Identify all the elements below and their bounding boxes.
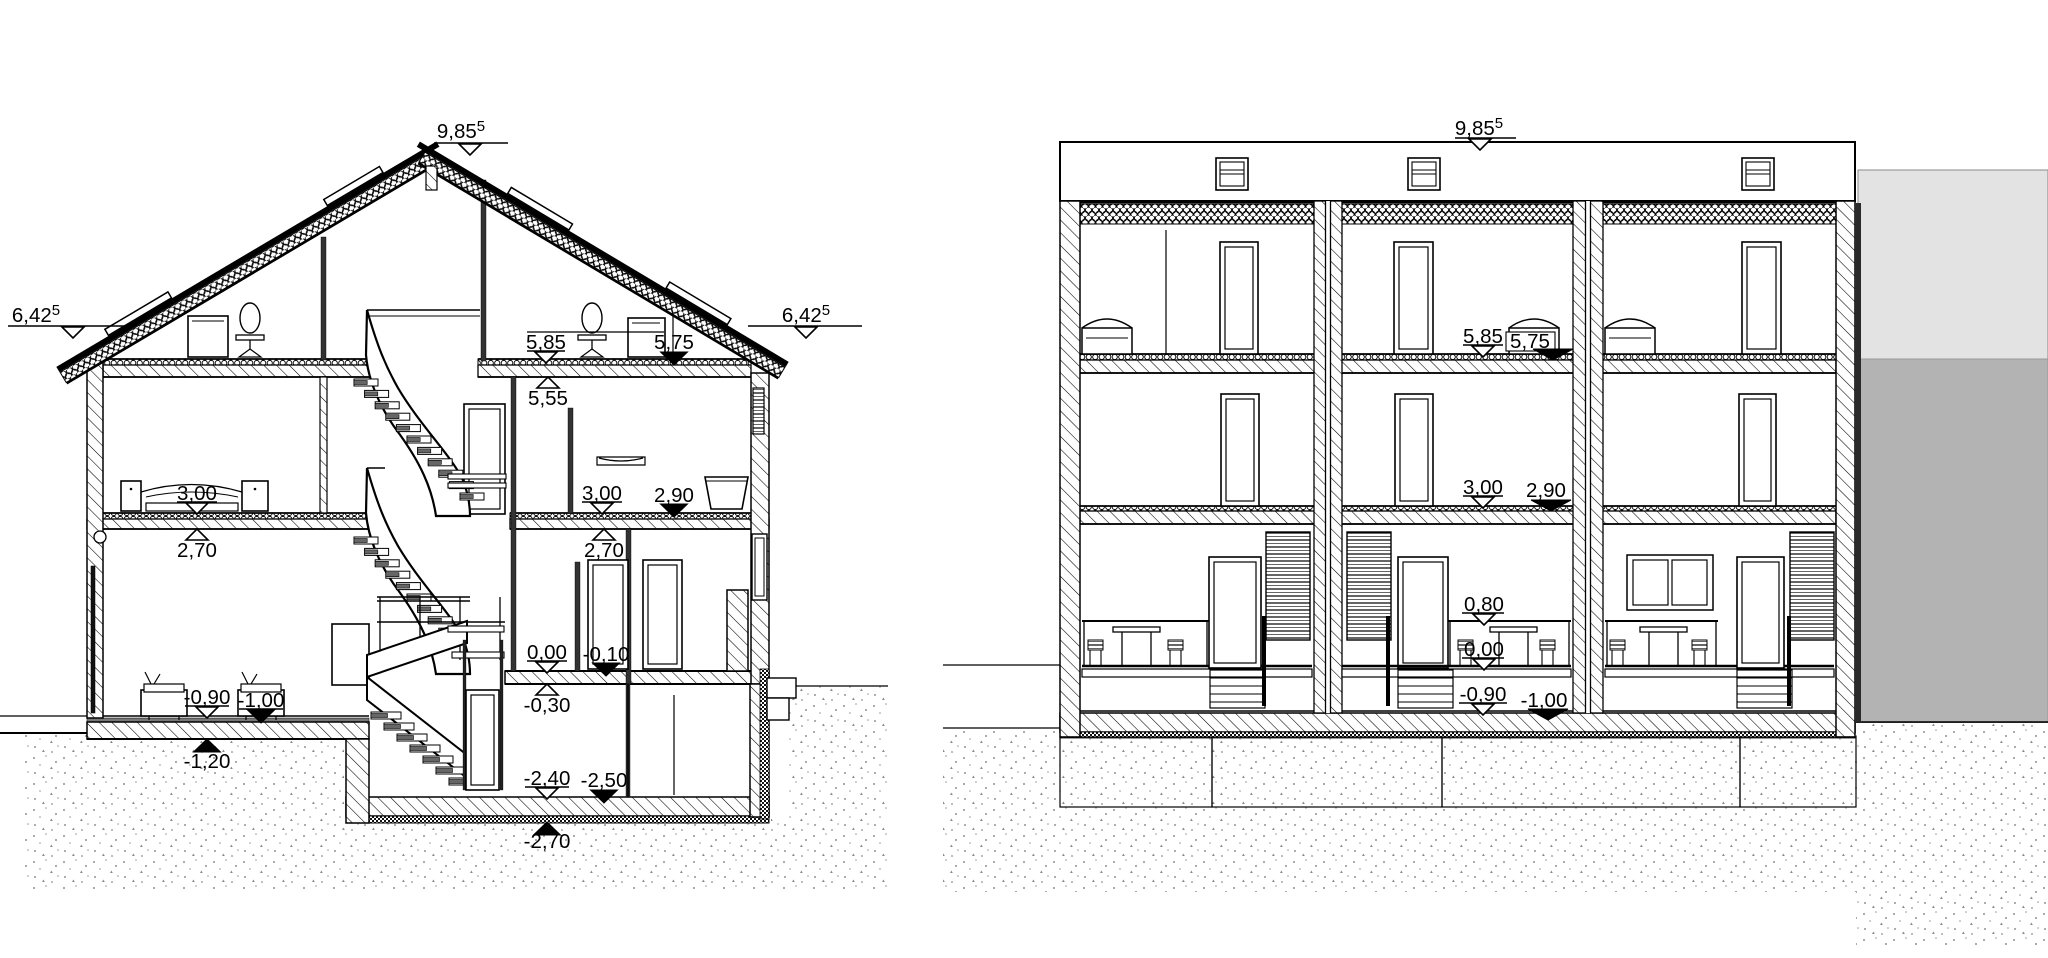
svg-text:-0,30: -0,30 [524,694,571,717]
svg-text:-1,20: -1,20 [184,750,231,773]
svg-text:5,75: 5,75 [654,331,694,354]
svg-text:2,70: 2,70 [177,539,217,562]
svg-text:2,90: 2,90 [1526,479,1566,502]
svg-text:2,70: 2,70 [584,539,624,562]
svg-text:5,55: 5,55 [528,387,568,410]
svg-text:-2,50: -2,50 [581,769,628,792]
